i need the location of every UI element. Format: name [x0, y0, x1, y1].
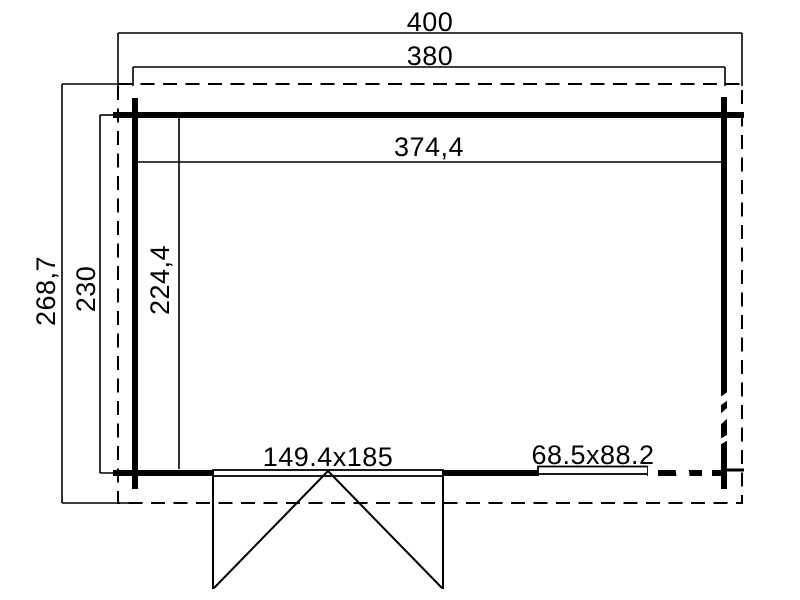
dim-interior-width-label: 374,4: [394, 132, 464, 162]
dimension-wall-width: 380: [133, 41, 725, 86]
double-door: 149.4x185: [213, 442, 443, 589]
floor-plan-drawing: 400 380 268,7 230 374,4 224,4: [0, 0, 800, 600]
dim-interior-depth-label: 224,4: [145, 245, 175, 315]
dimension-interior-width: 374,4: [136, 132, 721, 162]
window-size-label: 68.5x88.2: [531, 440, 654, 470]
window: 68.5x88.2: [531, 440, 654, 474]
dimension-wall-depth: 230: [71, 115, 117, 473]
door-size-label: 149.4x185: [263, 442, 394, 472]
dim-overall-depth-label: 268,7: [31, 256, 61, 326]
dim-wall-depth-label: 230: [71, 266, 101, 313]
watermark-gap-2: [675, 465, 690, 479]
dimension-interior-depth: 224,4: [145, 117, 179, 469]
door-swing-right: [328, 471, 442, 588]
door-swing-left: [214, 471, 328, 588]
dim-wall-width-label: 380: [407, 41, 454, 71]
watermark-gap-1: [648, 466, 658, 478]
watermark-gap-3: [702, 466, 712, 478]
floor-plan-canvas: 400 380 268,7 230 374,4 224,4: [0, 0, 800, 600]
dim-overall-width-label: 400: [407, 7, 454, 37]
